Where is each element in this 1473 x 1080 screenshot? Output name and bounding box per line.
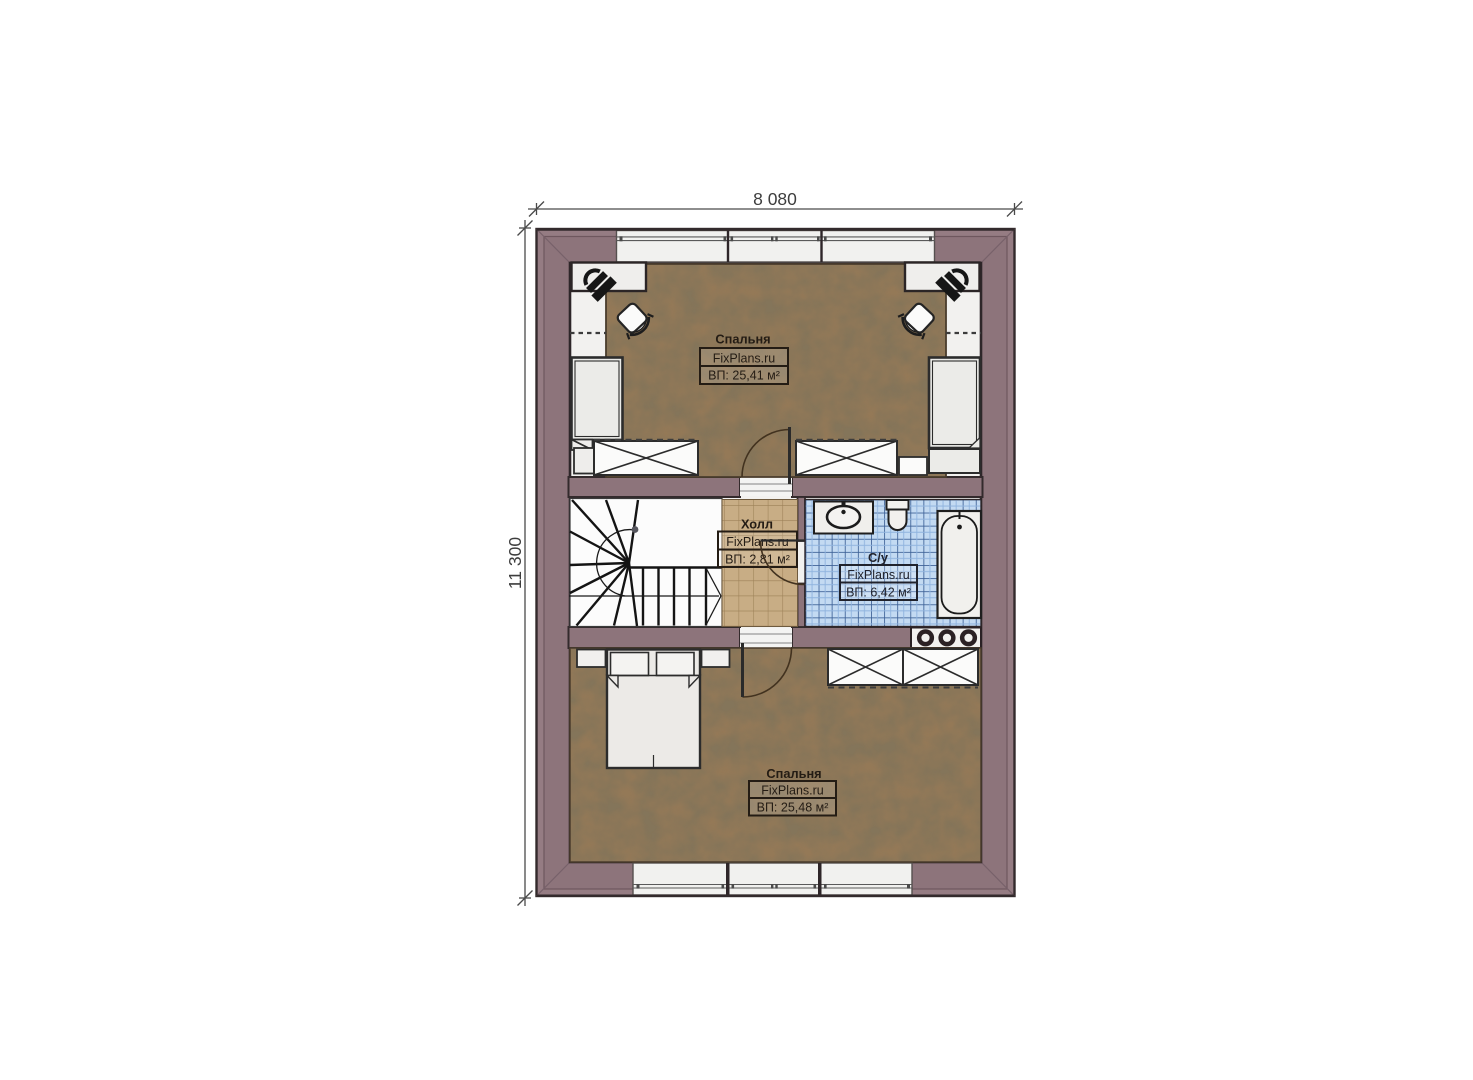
svg-text:FixPlans.ru: FixPlans.ru	[726, 535, 789, 549]
svg-text:11 300: 11 300	[505, 537, 525, 589]
svg-text:Спальня: Спальня	[715, 332, 770, 347]
svg-text:Спальня: Спальня	[766, 766, 821, 781]
svg-text:FixPlans.ru: FixPlans.ru	[761, 784, 824, 798]
svg-text:С/у: С/у	[868, 550, 889, 565]
svg-text:ВП: 25,48 м²: ВП: 25,48 м²	[757, 801, 829, 815]
svg-text:ВП: 2,81 м²: ВП: 2,81 м²	[725, 553, 790, 567]
svg-text:Холл: Холл	[741, 517, 773, 532]
svg-text:ВП: 6,42 м²: ВП: 6,42 м²	[846, 586, 911, 600]
svg-text:FixPlans.ru: FixPlans.ru	[713, 352, 776, 366]
svg-text:FixPlans.ru: FixPlans.ru	[847, 568, 910, 582]
svg-text:ВП: 25,41 м²: ВП: 25,41 м²	[708, 369, 780, 383]
svg-text:8 080: 8 080	[753, 189, 797, 209]
